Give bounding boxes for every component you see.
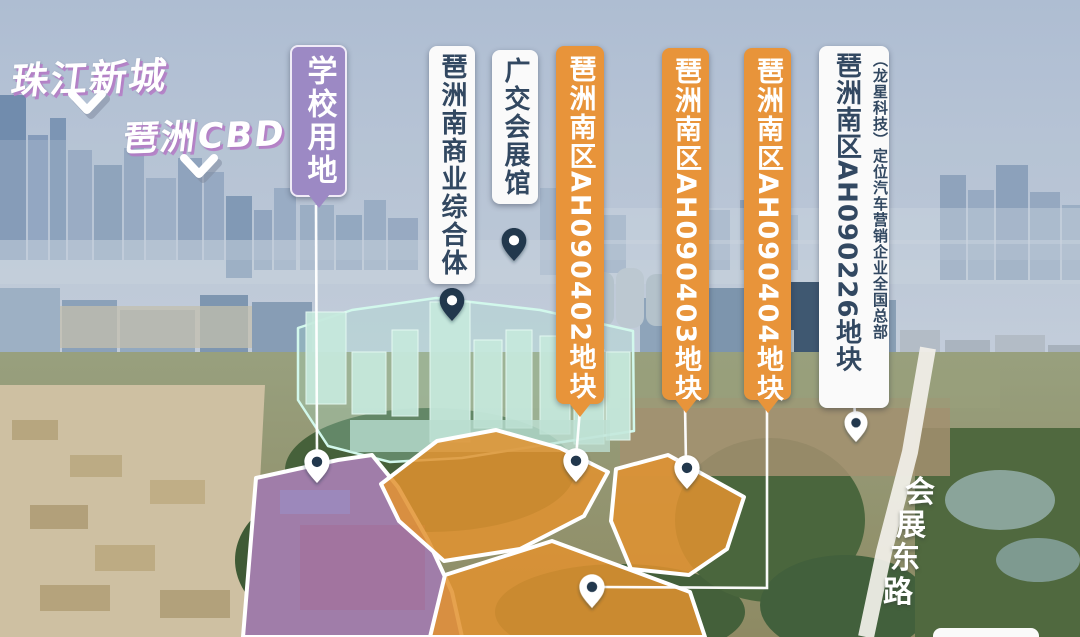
callout-plot-ah090403-text: 琶洲南区AH090403地块 bbox=[672, 48, 699, 400]
urban-village bbox=[0, 385, 265, 637]
callout-expo-hall-text: 广交会展馆 bbox=[502, 50, 528, 204]
callout-plot-ah090226-text: 琶洲南区AH090226地块 bbox=[834, 52, 860, 402]
leader-school bbox=[316, 205, 317, 459]
callout-tail bbox=[308, 194, 330, 208]
callout-plot-ah090226: 琶洲南区AH090226地块 （龙星科技）定位汽车营销企业全国总部 bbox=[819, 46, 889, 408]
road-name-char: 展 bbox=[896, 511, 926, 541]
callout-plot-ah090404: 琶洲南区AH090404地块 bbox=[744, 48, 791, 400]
leader-403 bbox=[685, 405, 686, 464]
road-name-char: 会 bbox=[905, 478, 935, 508]
cropped-label bbox=[933, 628, 1039, 637]
callout-biz-complex: 琶洲南商业综合体 bbox=[429, 46, 475, 284]
callout-plot-ah090402-text: 琶洲南区AH090402地块 bbox=[567, 46, 594, 404]
callout-school-land-text: 学校用地 bbox=[304, 47, 334, 195]
pazhou-aerial-annotation-figure: 珠江新城 琶洲CBD 学校用地 琶洲南商业综合体 广交会展馆 琶洲南区AH090… bbox=[0, 0, 1080, 637]
callout-biz-complex-text: 琶洲南商业综合体 bbox=[439, 46, 465, 284]
callout-expo-hall: 广交会展馆 bbox=[492, 50, 538, 204]
chevron-down-icon bbox=[66, 88, 108, 120]
road-name-char: 东 bbox=[890, 544, 920, 574]
callout-tail bbox=[569, 403, 591, 417]
pearl-river bbox=[0, 240, 1080, 284]
callout-plot-ah090404-text: 琶洲南区AH090404地块 bbox=[754, 48, 781, 400]
callout-plot-ah090403: 琶洲南区AH090403地块 bbox=[662, 48, 709, 400]
road-name-char: 路 bbox=[883, 578, 913, 608]
callout-plot-ah090226-subtext: （龙星科技）定位汽车营销企业全国总部 bbox=[872, 52, 887, 402]
callout-tail bbox=[675, 399, 697, 413]
callout-tail bbox=[757, 399, 779, 413]
callout-school-land: 学校用地 bbox=[290, 45, 347, 197]
chevron-down-icon bbox=[178, 152, 220, 184]
callout-plot-ah090402: 琶洲南区AH090402地块 bbox=[556, 46, 604, 404]
